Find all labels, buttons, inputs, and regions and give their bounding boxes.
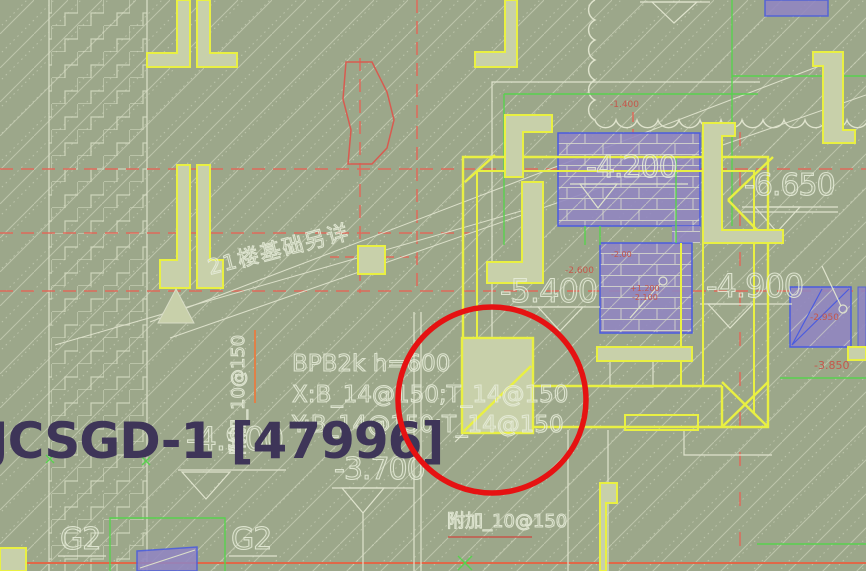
red-elevation-2100: -2.100 [632, 293, 658, 302]
rebar-note-horizontal: 附加_10@150 [447, 507, 567, 533]
red-elevation-3850: -3.850 [814, 359, 849, 372]
elevation-text-4200: -4.200 [586, 150, 677, 185]
beam-bar [597, 347, 692, 361]
red-elevation-p1200: +1.200 [630, 284, 660, 293]
elevation-text-6650: -6.650 [744, 168, 835, 203]
slab-note-line2: X:B_14@150;T_14@150 [292, 382, 568, 408]
red-elevation-2600: -2.600 [565, 266, 594, 276]
stepped-wall-band [49, 0, 147, 571]
pad-right-edge [848, 347, 866, 360]
beam-label-g2-right: G2 [231, 522, 271, 557]
elevation-text-4900: -4.900 [706, 267, 803, 305]
red-elevation-200: -2.00 [611, 250, 632, 259]
pad-small-square [358, 246, 385, 274]
pier-bottom [137, 547, 197, 571]
slab-note-line1: BPB2k h=600 [292, 351, 450, 377]
foundation-title-label: JCSGD-1 [47996] [0, 412, 443, 470]
column-bottom-left-corner [0, 548, 26, 571]
pier-top-right [765, 0, 828, 16]
cad-viewport[interactable]: -4.900 JCSGD-1 [47996] -4.200 -6.650 -5.… [0, 0, 866, 571]
red-elevation-2950: -2.950 [810, 313, 839, 323]
elevation-text-5400: -5.400 [500, 272, 597, 310]
pier-hatch-edge [858, 287, 866, 347]
beam-label-g2-left: G2 [60, 522, 100, 557]
red-elevation-1400: -1.400 [610, 100, 639, 110]
